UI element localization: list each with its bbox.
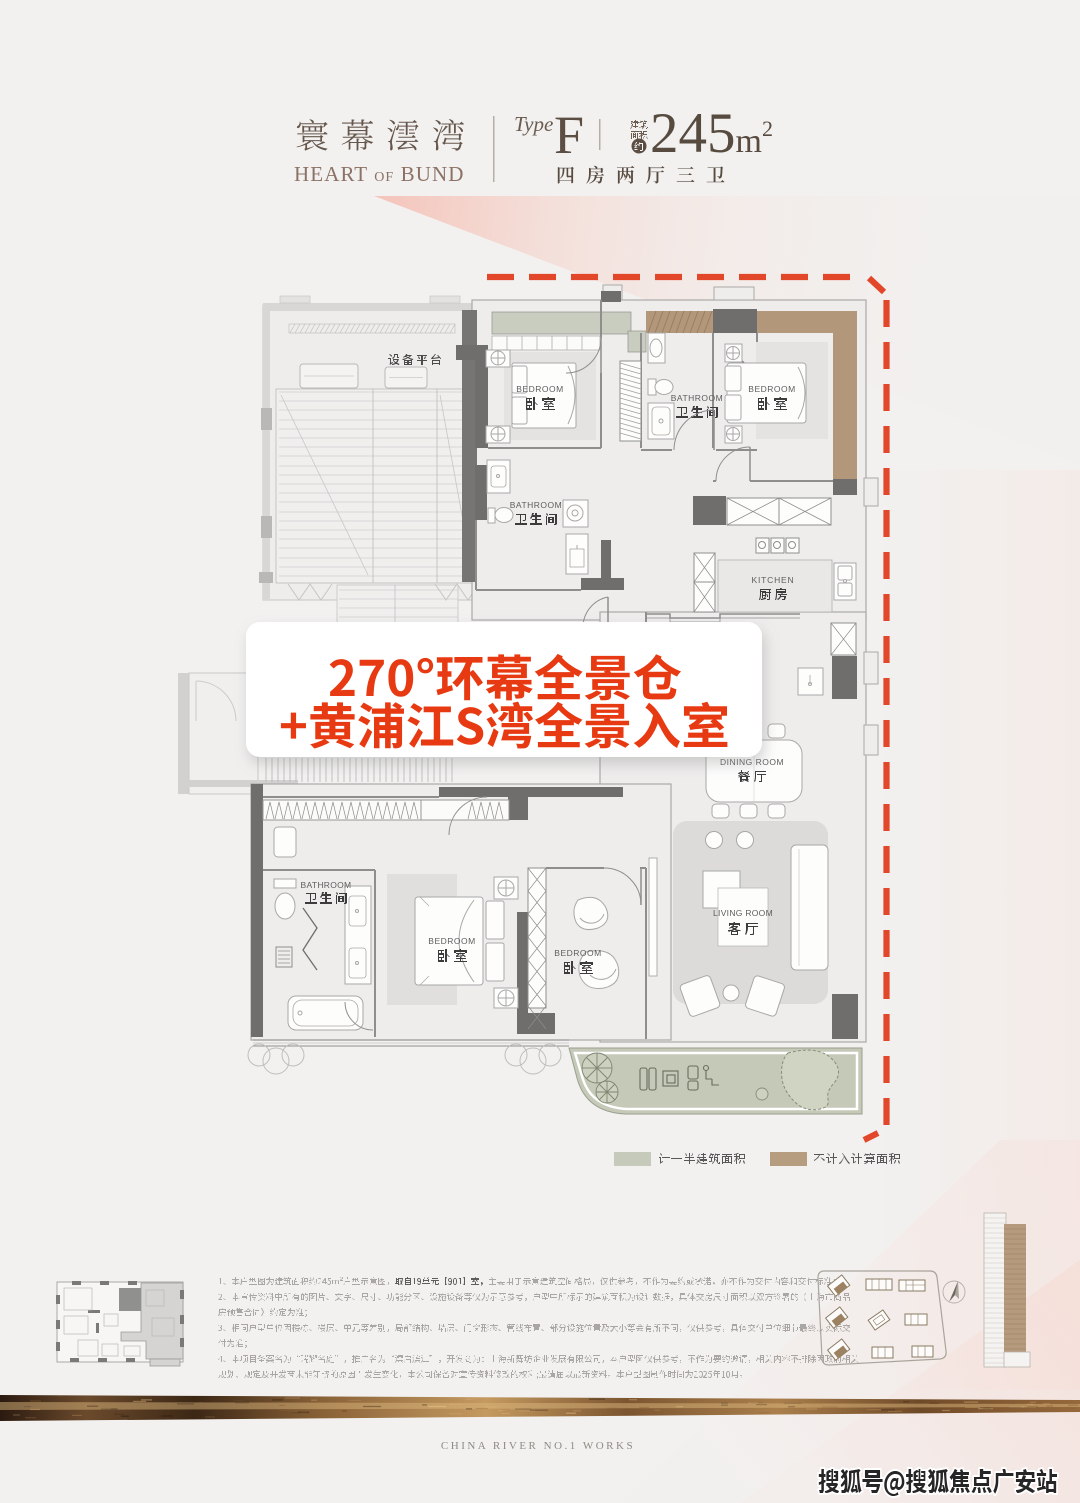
svg-text:LIVING ROOM: LIVING ROOM [713,908,773,918]
svg-text:BEDROOM: BEDROOM [516,384,563,394]
svg-text:HEART OF BUND: HEART OF BUND [294,162,465,186]
svg-text:BATHROOM: BATHROOM [510,500,562,510]
svg-text:Type: Type [514,112,553,136]
svg-text:BATHROOM: BATHROOM [301,880,352,890]
svg-text:BEDROOM: BEDROOM [428,936,475,946]
svg-text:BEDROOM: BEDROOM [554,948,601,958]
svg-text:DINING ROOM: DINING ROOM [720,757,784,767]
svg-text:F: F [554,105,584,165]
svg-text:BEDROOM: BEDROOM [748,384,795,394]
svg-text:CHINA RIVER NO.1 WORKS: CHINA RIVER NO.1 WORKS [441,1440,635,1452]
svg-text:KITCHEN: KITCHEN [752,575,795,585]
svg-text:245m2: 245m2 [650,102,773,165]
svg-text:BATHROOM: BATHROOM [671,393,723,403]
